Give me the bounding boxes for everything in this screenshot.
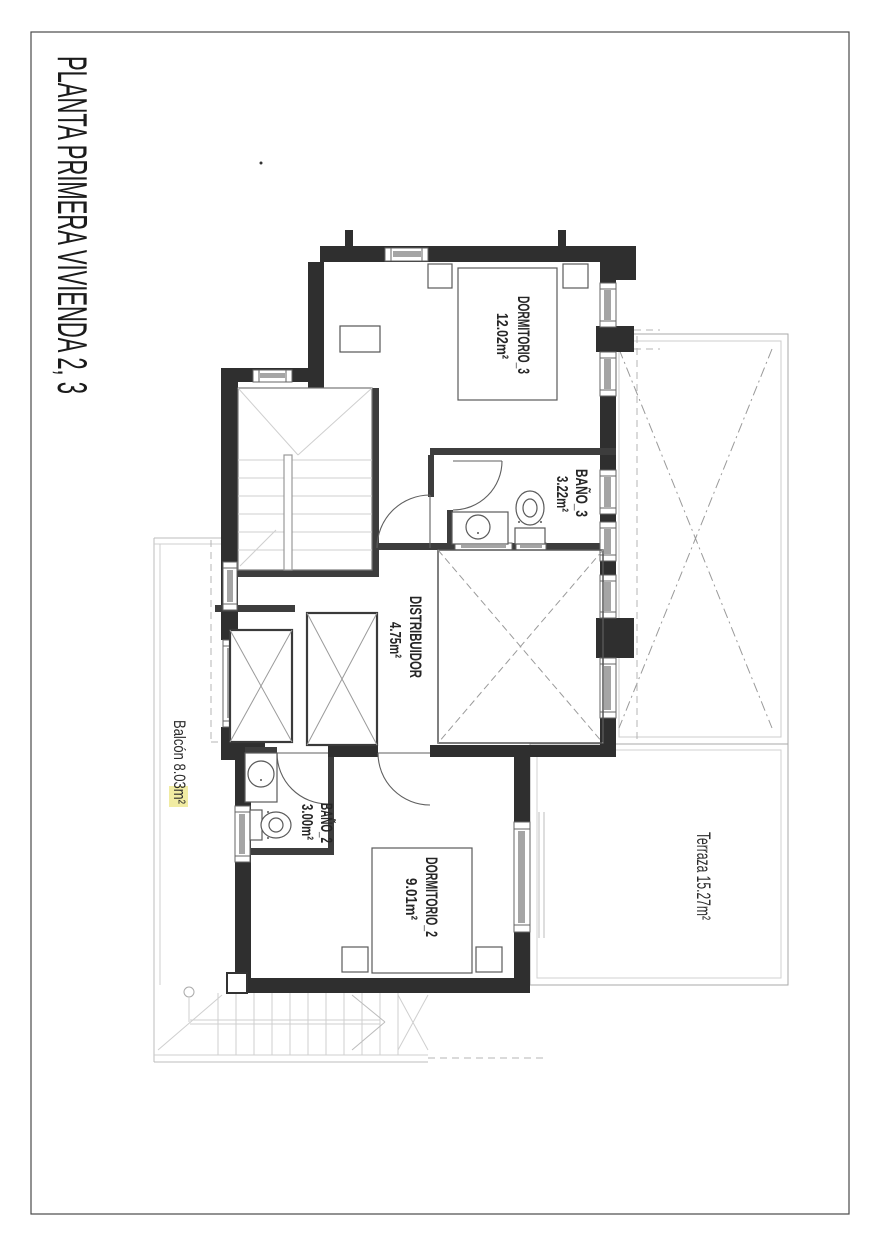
toilet-bano3 (515, 491, 545, 544)
label-bano2-area: 3.00m² (298, 804, 315, 840)
label-distribuidor-name: DISTRIBUIDOR (406, 596, 425, 678)
door-bano3 (453, 461, 502, 510)
nightstand (476, 947, 502, 972)
door-dormitorio2 (378, 753, 430, 805)
stair-stringer (284, 455, 292, 570)
distribuidor-void (438, 550, 603, 743)
plot-dot (260, 162, 263, 165)
toilet-bano2 (250, 810, 291, 840)
label-terraza: Terraza 15.27m² (692, 832, 713, 920)
label-dormitorio2-name: DORMITORIO_2 (422, 857, 441, 937)
sink-bano2 (245, 753, 277, 802)
label-dormitorio3-name: DORMITORIO_3 (514, 296, 533, 374)
window-top-wall (385, 248, 428, 261)
label-distribuidor-area: 4.75m² (386, 622, 403, 658)
floorplan-svg: PLANTA PRIMERA VIVIENDA 2, 3 (0, 0, 878, 1241)
window-bano2 (235, 806, 250, 862)
stairwell (238, 388, 372, 570)
bed-dormitorio2 (342, 848, 502, 973)
sheet-title: PLANTA PRIMERA VIVIENDA 2, 3 (49, 56, 96, 394)
window-dormitorio2 (514, 812, 544, 938)
drain-marker (184, 987, 194, 997)
terrace-outline (530, 744, 788, 985)
window-right-2 (600, 352, 616, 396)
nightstand (342, 947, 368, 972)
window-right-1 (600, 283, 616, 327)
label-bano2-name: BAÑO_2 (317, 803, 337, 843)
label-dormitorio2-area: 9.01m² (402, 878, 419, 920)
label-balcon: Balcón 8.03m² (170, 720, 189, 804)
roof-overhang (612, 330, 788, 744)
duct-box (340, 326, 380, 352)
door-hall (377, 495, 430, 548)
window-stairs (253, 370, 292, 382)
column (227, 973, 247, 993)
plan-sheet: PLANTA PRIMERA VIVIENDA 2, 3 (0, 0, 878, 1241)
door-bano2 (277, 753, 328, 804)
label-dormitorio3-area: 12.02m² (493, 313, 510, 359)
label-bano3-area: 3.22m² (553, 476, 570, 512)
exterior-stairs (154, 987, 545, 1062)
window-right-3 (600, 470, 616, 514)
sink-bano3 (452, 512, 508, 544)
label-bano3-name: BAÑO_3 (572, 469, 592, 517)
closet-small (230, 630, 292, 742)
nightstand (428, 264, 452, 288)
window-left-wall (223, 562, 237, 610)
nightstand (563, 264, 588, 288)
closet-large (307, 613, 377, 745)
